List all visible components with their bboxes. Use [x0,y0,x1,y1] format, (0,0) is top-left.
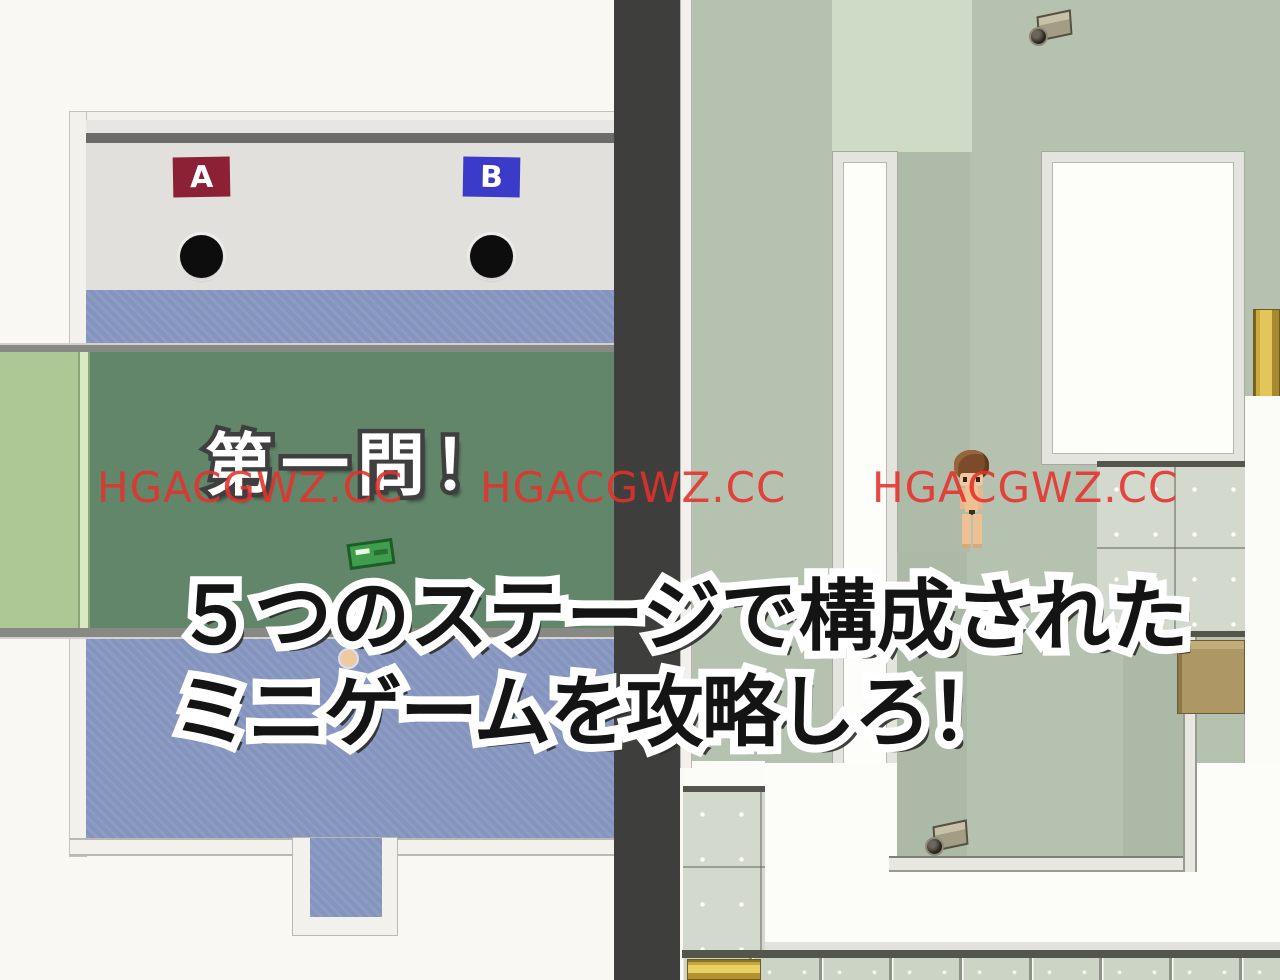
gold-crate-prop [687,959,761,980]
watermark: HGACGWZ.CC [97,463,403,512]
gold-bed-prop [1253,309,1280,397]
answer-sign-b[interactable]: B [463,157,521,198]
security-camera-icon [924,818,970,860]
room-wall-trim [86,133,614,143]
map-left-white-band [683,761,765,786]
answer-sign-b-label: B [480,159,503,194]
map-bottom-wall-edge [682,950,1280,958]
room-wall [86,143,614,290]
map-room-white [1042,152,1244,464]
caption-line-2-text: ミニゲームを攻略しろ！ [172,668,1006,758]
camera-lens [1029,27,1048,46]
watermark: HGACGWZ.CC [872,463,1178,512]
player-leg [962,514,971,548]
security-camera-icon [1028,8,1074,50]
quiz-table-divider [78,352,90,628]
speaker-dot-b[interactable] [470,235,513,278]
answer-sign-a-label: A [190,159,214,194]
room-wall-upper [86,120,614,133]
watermark: HGACGWZ.CC [480,463,786,512]
speaker-dot-a[interactable] [180,235,223,278]
map-bottom-panel-row [682,958,1280,980]
exit-corridor-floor [310,838,382,917]
answer-sign-a[interactable]: A [173,157,231,198]
concrete-panel-column [683,786,765,950]
map-pale-area [832,0,972,152]
game-screenshot: A B 第一問！ 第一問！ [0,0,1280,980]
quiz-table-left [0,352,78,628]
player-leg [973,514,982,548]
caption-line-2: ミニゲームを攻略しろ！ ミニゲームを攻略しろ！ [172,650,1006,762]
camera-lens [925,837,944,856]
caption-line-1-text: ５つのステージで構成された [176,572,1188,662]
